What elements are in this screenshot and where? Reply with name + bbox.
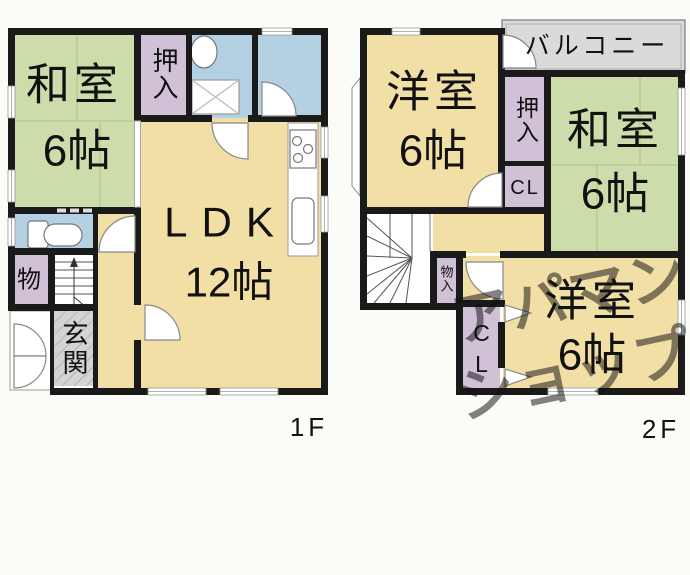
balcony-label: バルコニー xyxy=(525,32,670,60)
washitsu-2f-size: 6帖 xyxy=(581,170,649,219)
kitchen-sink-icon xyxy=(292,198,314,244)
floorplan-canvas: アパマン ショップ 和室 6帖 LDK 12帖 物 1F 洋室 6帖 バルコニー… xyxy=(0,0,690,575)
cl-lower-2f-label: CL xyxy=(470,320,493,382)
bay-window-2f xyxy=(352,78,360,196)
washitsu-1f-size: 6帖 xyxy=(43,127,111,176)
washbasin-icon xyxy=(191,36,217,68)
room-washitsu-2f xyxy=(549,75,680,253)
cl-upper-2f-label: CL xyxy=(510,177,540,199)
oshiire-2f-label: 押入 xyxy=(514,96,537,144)
toilet-bowl-icon xyxy=(44,224,82,246)
genkan-label: 玄関 xyxy=(61,320,87,378)
hall-2f xyxy=(428,212,546,253)
room-washitsu-1f xyxy=(12,32,137,212)
oshiire-1f-label: 押入 xyxy=(151,47,177,101)
floor1-label: 1F xyxy=(290,412,328,442)
yoshitsu-bottom-2f-label: 洋室 xyxy=(544,277,640,326)
washitsu-2f-label: 和室 xyxy=(567,106,663,155)
yoshitsu-bottom-2f-size: 6帖 xyxy=(558,331,626,380)
sliding-door-dashes-1f xyxy=(57,209,92,213)
yoshitsu-top-2f-size: 6帖 xyxy=(399,127,467,176)
monoire-2f-label: 物入 xyxy=(440,265,453,293)
yoshitsu-top-2f-label: 洋室 xyxy=(386,68,482,117)
fusuma-sliding-door-1f xyxy=(135,121,141,207)
ldk-label: LDK xyxy=(164,199,288,246)
ldk-size: 12帖 xyxy=(185,259,274,306)
mono-1f-label: 物 xyxy=(17,267,41,294)
floor2-label: 2F xyxy=(642,414,680,444)
washitsu-1f-label: 和室 xyxy=(26,61,122,110)
